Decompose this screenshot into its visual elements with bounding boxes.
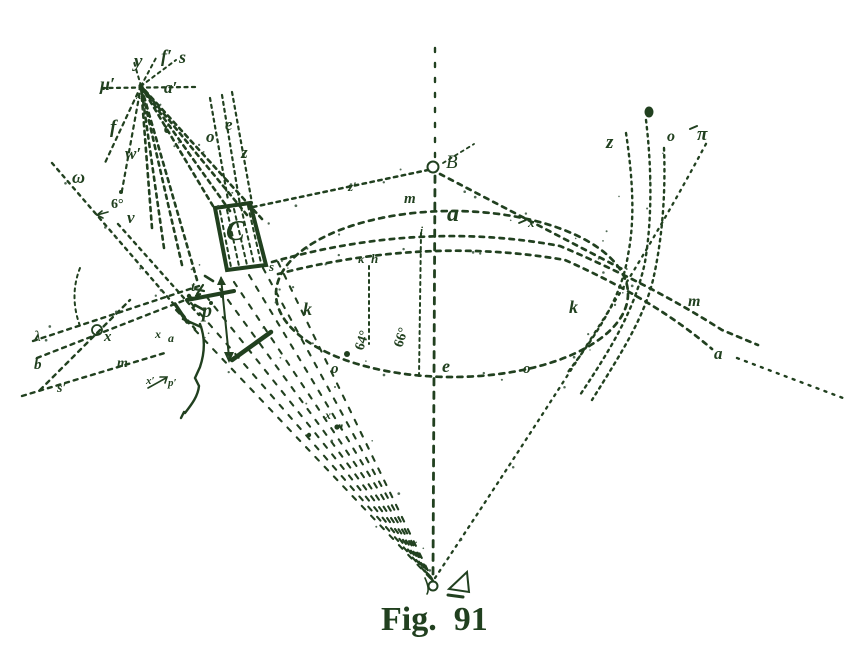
svg-text:a: a [168, 331, 174, 345]
svg-text:x: x [527, 215, 535, 230]
svg-text:m: m [404, 191, 416, 207]
svg-text:k: k [303, 299, 312, 319]
svg-text:s: s [268, 259, 274, 274]
svg-text:o: o [206, 127, 215, 146]
svg-text:x: x [103, 329, 112, 345]
svg-text:x: x [324, 408, 331, 422]
svg-text:μ′: μ′ [99, 74, 115, 94]
svg-text:w′: w′ [125, 144, 141, 163]
svg-text:x′: x′ [145, 375, 155, 387]
svg-text:y: y [132, 51, 143, 72]
svg-text:o: o [331, 361, 339, 377]
svg-text:6°: 6° [111, 197, 124, 212]
svg-text:s: s [178, 47, 186, 67]
svg-text:c: c [164, 118, 172, 137]
svg-text:Fig. 91: Fig. 91 [381, 601, 488, 638]
svg-text:λ: λ [33, 329, 41, 345]
svg-text:a: a [447, 201, 459, 227]
svg-text:66°: 66° [392, 326, 412, 349]
svg-text:b: b [34, 357, 42, 373]
svg-text:h: h [371, 251, 378, 266]
svg-text:e: e [442, 356, 450, 376]
svg-text:ω: ω [72, 167, 85, 187]
svg-text:ι: ι [340, 419, 344, 433]
svg-text:o: o [523, 361, 531, 377]
svg-text:z: z [605, 132, 614, 153]
svg-text:x: x [135, 91, 141, 102]
svg-text:v: v [127, 208, 135, 227]
svg-text:p: p [200, 300, 212, 322]
svg-text:π: π [697, 124, 708, 145]
svg-text:e: e [225, 115, 233, 134]
svg-text:f′: f′ [161, 46, 172, 66]
svg-text:i: i [420, 225, 424, 237]
svg-text:κ: κ [358, 252, 365, 266]
svg-text:z: z [240, 143, 248, 162]
svg-text:o: o [667, 128, 675, 145]
svg-text:m: m [117, 356, 128, 371]
svg-text:p′: p′ [167, 377, 177, 389]
svg-text:a′: a′ [164, 78, 177, 97]
svg-text:s′: s′ [56, 381, 66, 396]
svg-text:C: C [226, 216, 245, 247]
svg-text:x: x [154, 327, 161, 341]
svg-text:m: m [688, 293, 700, 310]
svg-text:f: f [110, 117, 118, 138]
svg-text:k: k [569, 297, 578, 317]
svg-text:z′: z′ [347, 179, 357, 194]
svg-text:a: a [714, 344, 723, 363]
